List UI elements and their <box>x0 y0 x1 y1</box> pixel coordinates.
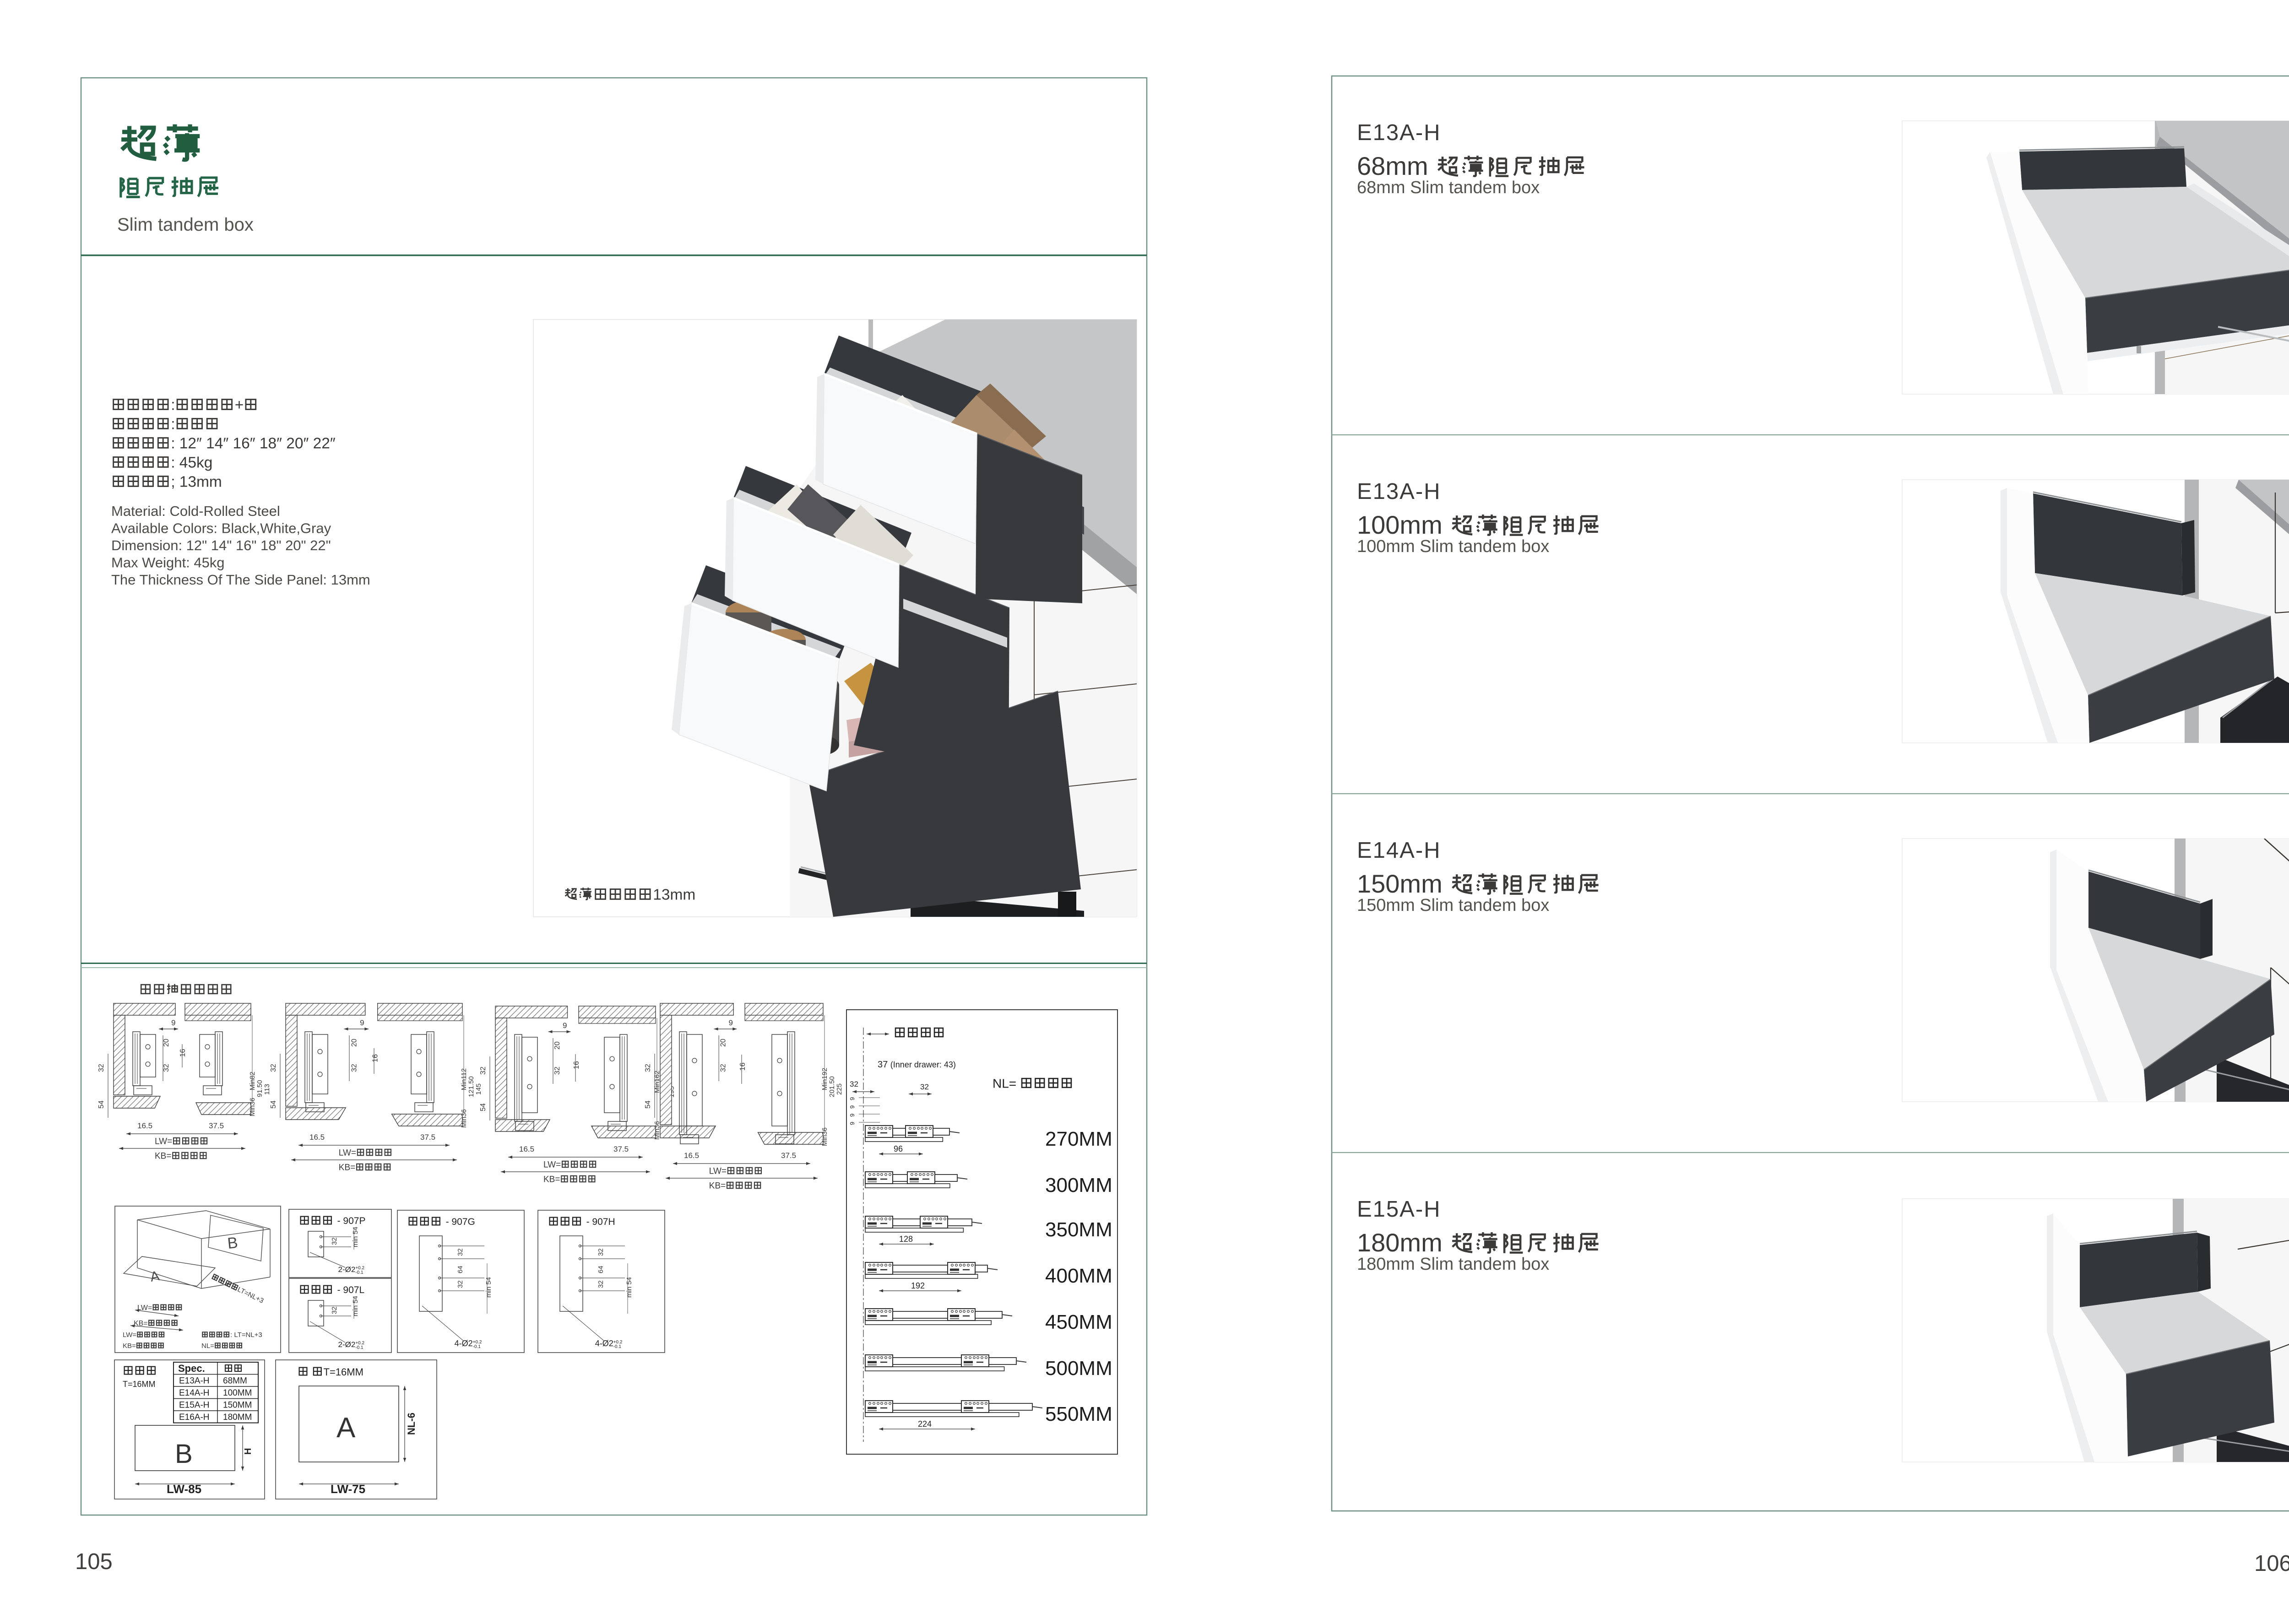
svg-text:9: 9 <box>849 1114 856 1117</box>
svg-text:Min192: Min192 <box>821 1068 829 1090</box>
svg-text:9: 9 <box>563 1021 567 1030</box>
svg-text:105: 105 <box>75 1549 113 1574</box>
svg-text:128: 128 <box>899 1234 913 1244</box>
svg-text:54: 54 <box>270 1100 277 1109</box>
svg-text:LW=: LW= <box>339 1148 356 1158</box>
svg-text:106: 106 <box>2254 1551 2289 1576</box>
svg-text:Min112: Min112 <box>460 1068 468 1090</box>
svg-text:-0.1: -0.1 <box>355 1345 363 1350</box>
svg-text:B: B <box>175 1439 193 1469</box>
svg-text:32: 32 <box>331 1306 338 1314</box>
svg-text:100mm Slim tandem box: 100mm Slim tandem box <box>1357 537 1549 556</box>
svg-text:68MM: 68MM <box>223 1376 247 1386</box>
svg-text:(Inner drawer: 43): (Inner drawer: 43) <box>890 1060 956 1069</box>
svg-text:4-Ø2: 4-Ø2 <box>595 1339 613 1348</box>
svg-text:Min82: Min82 <box>249 1072 256 1090</box>
svg-text:113: 113 <box>263 1084 271 1095</box>
svg-text:37.5: 37.5 <box>613 1145 629 1153</box>
svg-text:550MM: 550MM <box>1045 1403 1112 1425</box>
svg-text:E13A-H: E13A-H <box>179 1376 210 1386</box>
svg-text:350MM: 350MM <box>1045 1218 1112 1241</box>
svg-text:64: 64 <box>597 1266 605 1273</box>
svg-text:NL=: NL= <box>201 1342 214 1350</box>
svg-text:-0.1: -0.1 <box>473 1344 481 1349</box>
svg-text::: : <box>171 416 175 433</box>
svg-text:- 907H: - 907H <box>586 1217 615 1227</box>
svg-text:225: 225 <box>835 1083 843 1095</box>
svg-text:224: 224 <box>918 1419 932 1429</box>
svg-text:16: 16 <box>739 1062 747 1071</box>
svg-text:16.5: 16.5 <box>309 1133 325 1142</box>
svg-text:min 54: min 54 <box>485 1277 493 1298</box>
svg-text:37.5: 37.5 <box>209 1121 224 1130</box>
svg-text:E15A-H: E15A-H <box>179 1401 210 1410</box>
svg-text:- 907P: - 907P <box>337 1216 366 1226</box>
svg-text:Material: Cold-Rolled Steel: Material: Cold-Rolled Steel <box>111 503 280 519</box>
svg-text:NL-6: NL-6 <box>406 1413 417 1435</box>
svg-text:LW-75: LW-75 <box>331 1482 365 1496</box>
svg-text:20: 20 <box>553 1041 561 1050</box>
svg-text:Min36: Min36 <box>821 1127 829 1146</box>
svg-text:- 907L: - 907L <box>337 1285 365 1295</box>
svg-text:32: 32 <box>719 1064 727 1072</box>
svg-text:9: 9 <box>849 1122 856 1125</box>
svg-text:2-Ø2: 2-Ø2 <box>338 1340 356 1349</box>
svg-text:min 54: min 54 <box>352 1296 359 1316</box>
svg-text:9: 9 <box>849 1105 856 1109</box>
svg-text:min 54: min 54 <box>352 1227 359 1247</box>
svg-text:201.50: 201.50 <box>828 1076 836 1097</box>
svg-text:400MM: 400MM <box>1045 1265 1112 1287</box>
svg-text:100MM: 100MM <box>223 1388 252 1398</box>
svg-text:2-Ø2: 2-Ø2 <box>338 1265 356 1274</box>
svg-text:NL=: NL= <box>993 1077 1016 1091</box>
svg-text:37.5: 37.5 <box>420 1133 435 1142</box>
svg-text:20: 20 <box>350 1039 358 1047</box>
svg-text:180mm: 180mm <box>1357 1228 1443 1257</box>
svg-text:32: 32 <box>644 1064 652 1072</box>
svg-text:E13A-H: E13A-H <box>1357 120 1441 145</box>
svg-text:16: 16 <box>573 1061 580 1069</box>
svg-text:H: H <box>243 1448 253 1455</box>
svg-text:20: 20 <box>719 1039 727 1047</box>
svg-text:Available Colors: Black,White,: Available Colors: Black,White,Gray <box>111 520 331 536</box>
svg-text:KB=: KB= <box>709 1181 726 1191</box>
svg-text:Max Weight: 45kg: Max Weight: 45kg <box>111 555 225 571</box>
svg-text:150mm: 150mm <box>1357 869 1443 898</box>
svg-text:37.5: 37.5 <box>781 1151 796 1160</box>
svg-text:121.50: 121.50 <box>467 1076 475 1097</box>
svg-text:91.50: 91.50 <box>256 1080 264 1097</box>
svg-text:32: 32 <box>553 1066 561 1075</box>
svg-text:E16A-H: E16A-H <box>179 1413 210 1422</box>
svg-text:16: 16 <box>179 1049 187 1057</box>
svg-text:37: 37 <box>878 1060 888 1070</box>
svg-text:150mm Slim tandem box: 150mm Slim tandem box <box>1357 896 1549 915</box>
svg-text:32: 32 <box>479 1066 487 1075</box>
svg-text:9: 9 <box>171 1018 175 1027</box>
svg-text:4-Ø2: 4-Ø2 <box>455 1339 473 1348</box>
svg-text:100mm: 100mm <box>1357 510 1443 539</box>
svg-text:16.5: 16.5 <box>137 1121 152 1130</box>
svg-text:LW=: LW= <box>709 1167 727 1176</box>
svg-text:68mm Slim tandem box: 68mm Slim tandem box <box>1357 178 1540 197</box>
svg-text:: 45kg: : 45kg <box>171 454 212 471</box>
svg-text:180MM: 180MM <box>223 1413 252 1422</box>
svg-text:Spec.: Spec. <box>178 1363 205 1374</box>
svg-text:150MM: 150MM <box>223 1401 252 1410</box>
svg-text:KB=: KB= <box>155 1152 171 1161</box>
svg-text:20: 20 <box>163 1039 170 1047</box>
svg-text:LW=: LW= <box>137 1304 152 1312</box>
svg-text:64: 64 <box>456 1266 464 1273</box>
svg-text:16.5: 16.5 <box>684 1151 699 1160</box>
svg-text:300MM: 300MM <box>1045 1174 1112 1196</box>
svg-text:LW=: LW= <box>123 1331 136 1339</box>
svg-text:54: 54 <box>98 1100 105 1109</box>
svg-text:KB=: KB= <box>123 1342 136 1350</box>
svg-text:32: 32 <box>456 1280 464 1288</box>
svg-text:Min36: Min36 <box>249 1098 256 1116</box>
svg-text:E15A-H: E15A-H <box>1357 1197 1441 1222</box>
svg-text:; 13mm: ; 13mm <box>171 473 222 490</box>
svg-text:: 12″ 14″ 16″ 18″ 20″ 22″: : 12″ 14″ 16″ 18″ 20″ 22″ <box>171 435 336 452</box>
svg-text:32: 32 <box>597 1280 605 1288</box>
svg-text:54: 54 <box>479 1103 487 1111</box>
svg-text:Min36: Min36 <box>460 1109 468 1128</box>
svg-text:13mm: 13mm <box>653 886 695 903</box>
svg-text:9: 9 <box>360 1018 364 1027</box>
svg-text:145: 145 <box>475 1083 483 1095</box>
svg-text:16: 16 <box>372 1054 380 1062</box>
svg-text:KB=: KB= <box>339 1163 355 1173</box>
svg-text:192: 192 <box>911 1281 925 1290</box>
svg-text:96: 96 <box>894 1144 903 1153</box>
svg-text:LW=: LW= <box>543 1160 561 1170</box>
svg-text:450MM: 450MM <box>1045 1311 1112 1333</box>
svg-text:E14A-H: E14A-H <box>1357 838 1441 863</box>
svg-text:16.5: 16.5 <box>519 1145 534 1153</box>
svg-text:32: 32 <box>597 1248 605 1256</box>
svg-text:T=16MM: T=16MM <box>324 1366 363 1378</box>
svg-text::: : <box>171 396 175 413</box>
svg-text:32: 32 <box>456 1248 464 1256</box>
svg-text:32: 32 <box>850 1080 858 1088</box>
svg-text:68mm: 68mm <box>1357 152 1428 180</box>
svg-text:32: 32 <box>270 1064 277 1072</box>
svg-text:32: 32 <box>98 1064 105 1072</box>
svg-text:180mm Slim tandem box: 180mm Slim tandem box <box>1357 1255 1549 1274</box>
svg-text:KB=: KB= <box>543 1175 560 1185</box>
svg-text:: LT=NL+3: : LT=NL+3 <box>230 1331 262 1339</box>
svg-text:LW=: LW= <box>155 1137 172 1147</box>
svg-text:-0.1: -0.1 <box>613 1344 622 1349</box>
svg-text:270MM: 270MM <box>1045 1128 1112 1150</box>
svg-text:Dimension: 12" 14" 16" 18" 20": Dimension: 12" 14" 16" 18" 20" 22" <box>111 537 331 553</box>
svg-text:32: 32 <box>920 1083 929 1091</box>
svg-text:E14A-H: E14A-H <box>179 1388 210 1398</box>
svg-text:+: + <box>235 396 244 413</box>
svg-text:9: 9 <box>849 1097 856 1100</box>
svg-text:KB=: KB= <box>134 1320 148 1327</box>
svg-text:500MM: 500MM <box>1045 1357 1112 1380</box>
svg-text:9: 9 <box>729 1018 733 1027</box>
svg-text:32: 32 <box>331 1237 338 1245</box>
svg-text:32: 32 <box>350 1064 358 1072</box>
svg-text:32: 32 <box>163 1064 170 1072</box>
svg-text:T=16MM: T=16MM <box>123 1380 156 1389</box>
svg-text:Slim tandem box: Slim tandem box <box>117 215 254 235</box>
svg-text:54: 54 <box>644 1100 652 1109</box>
svg-text:E13A-H: E13A-H <box>1357 479 1441 504</box>
svg-text:A: A <box>336 1412 356 1444</box>
svg-text:The Thickness Of The Side Pane: The Thickness Of The Side Panel: 13mm <box>111 572 370 588</box>
svg-text:B: B <box>227 1234 239 1252</box>
svg-text:- 907G: - 907G <box>446 1217 475 1227</box>
svg-text:min 54: min 54 <box>625 1277 633 1298</box>
svg-text:-0.1: -0.1 <box>355 1270 363 1275</box>
svg-text:LW-85: LW-85 <box>167 1482 201 1496</box>
